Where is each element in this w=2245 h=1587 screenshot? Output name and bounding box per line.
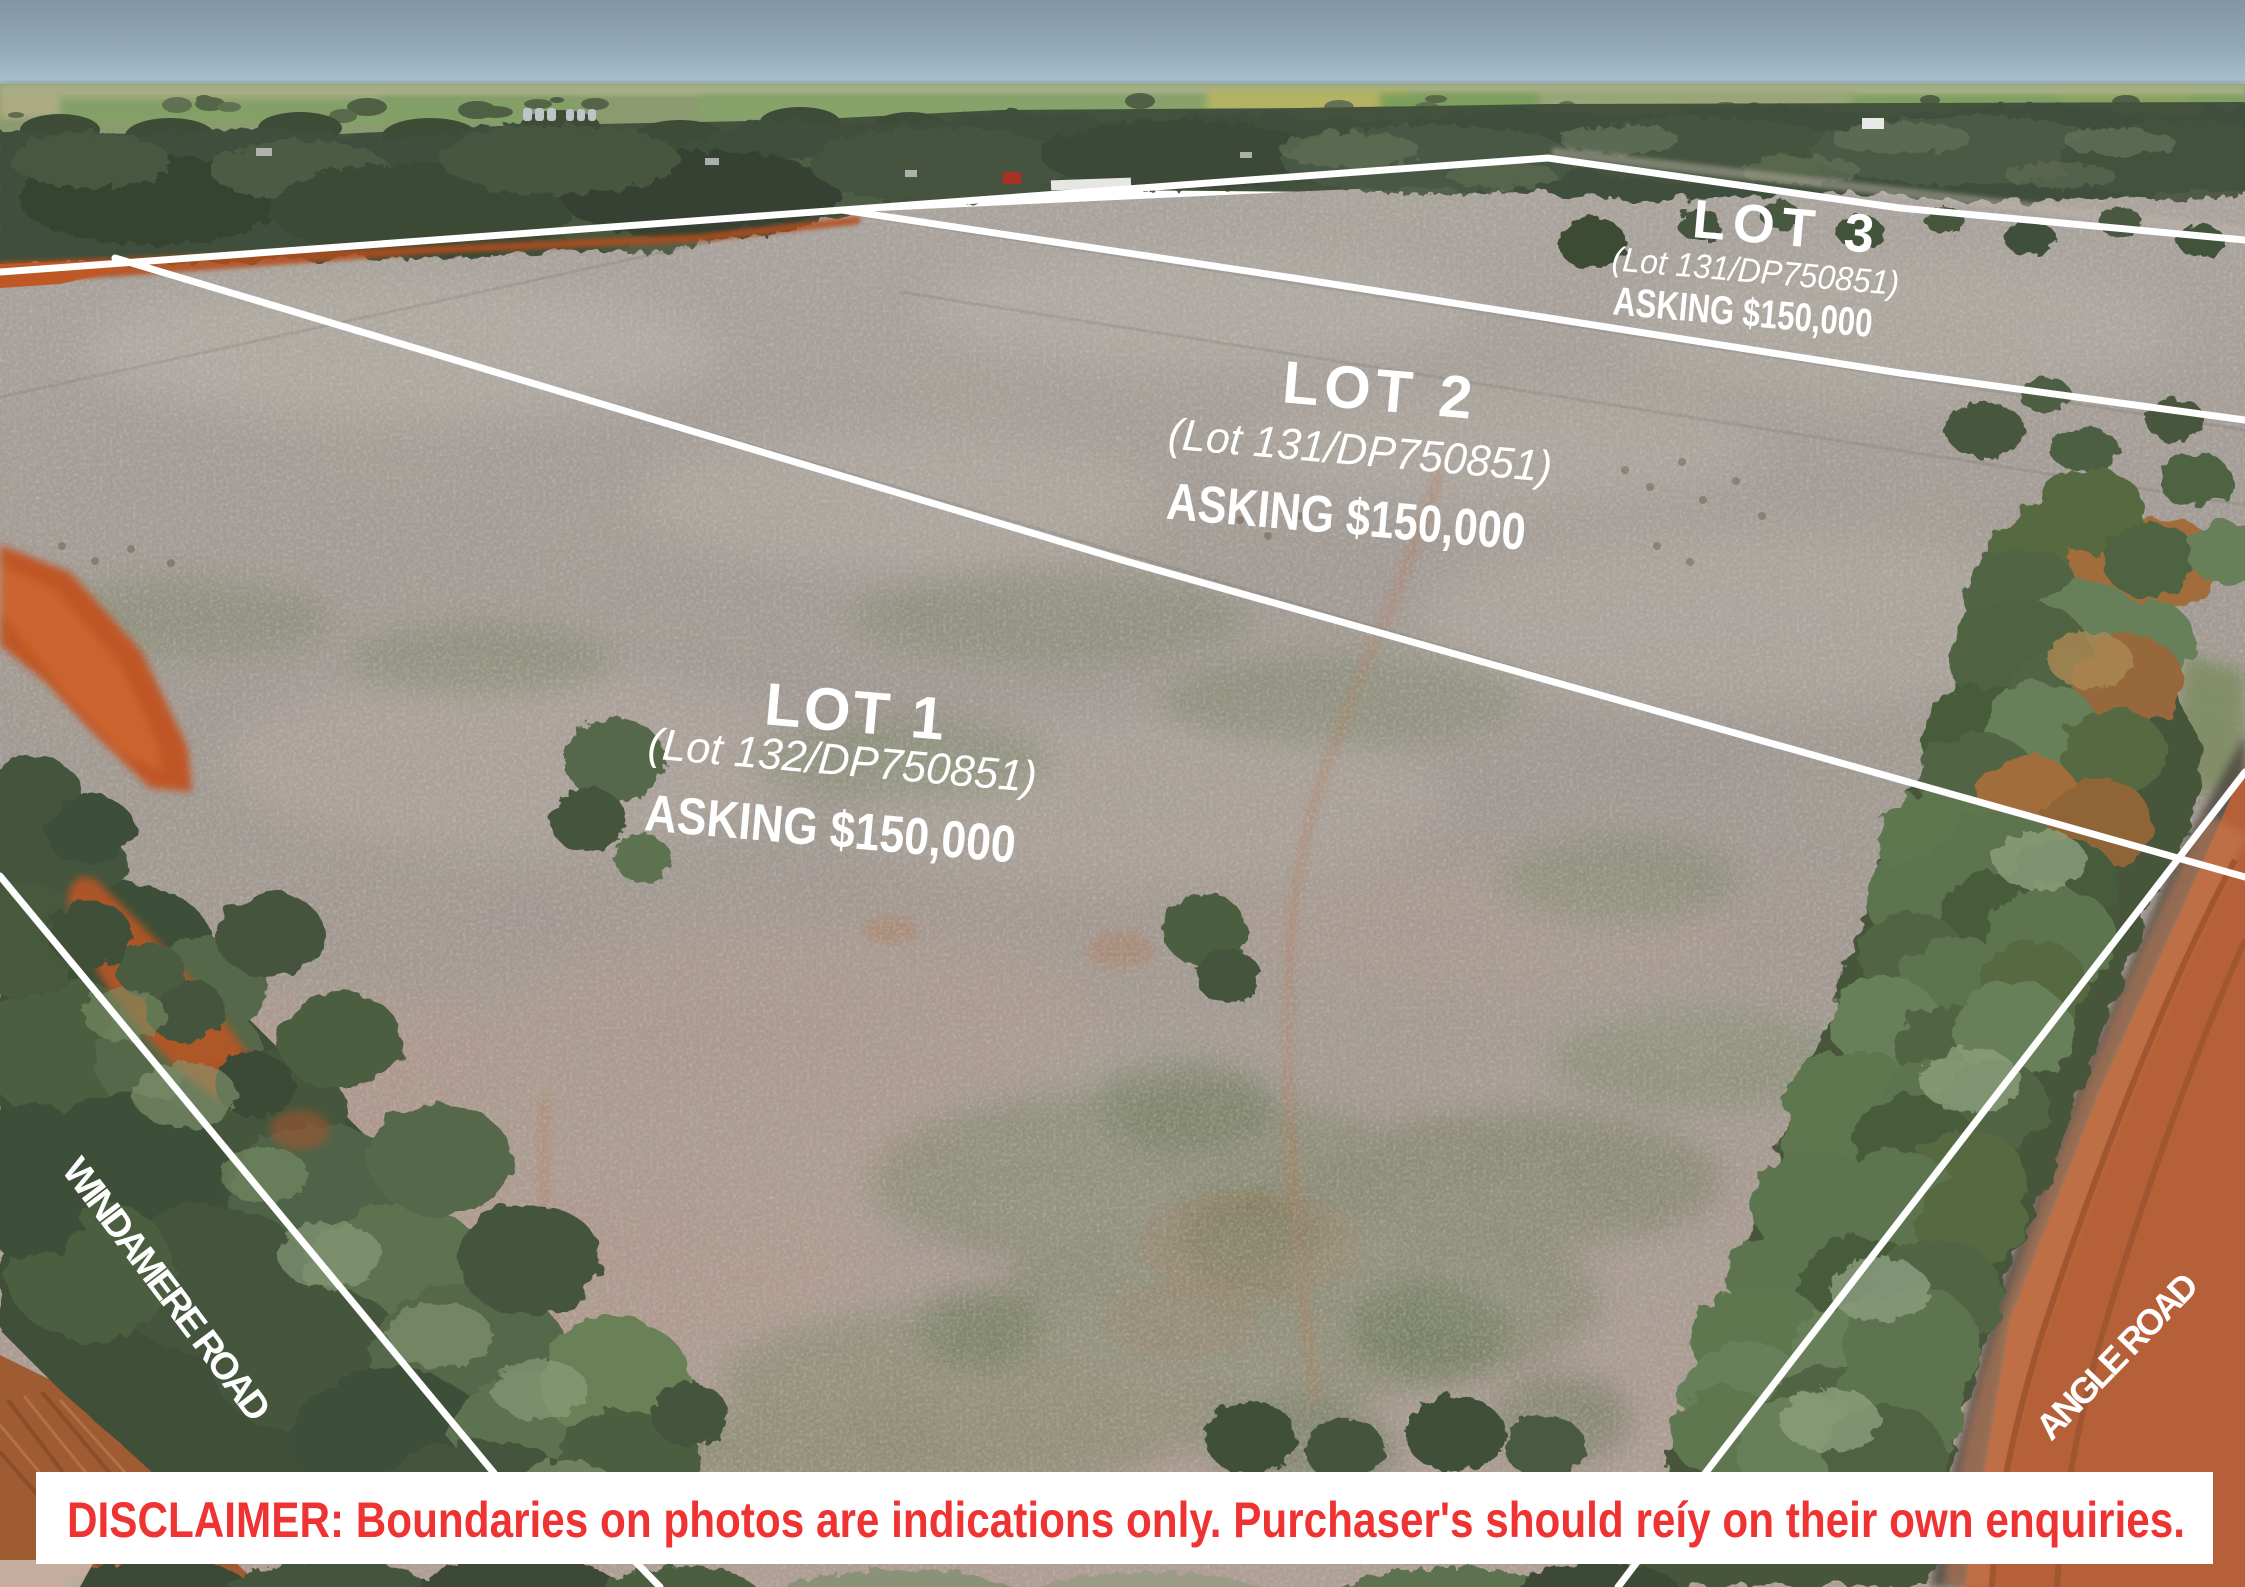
- svg-text:DISCLAIMER: Boundaries on phot: DISCLAIMER: Boundaries on photos are ind…: [67, 1492, 2185, 1548]
